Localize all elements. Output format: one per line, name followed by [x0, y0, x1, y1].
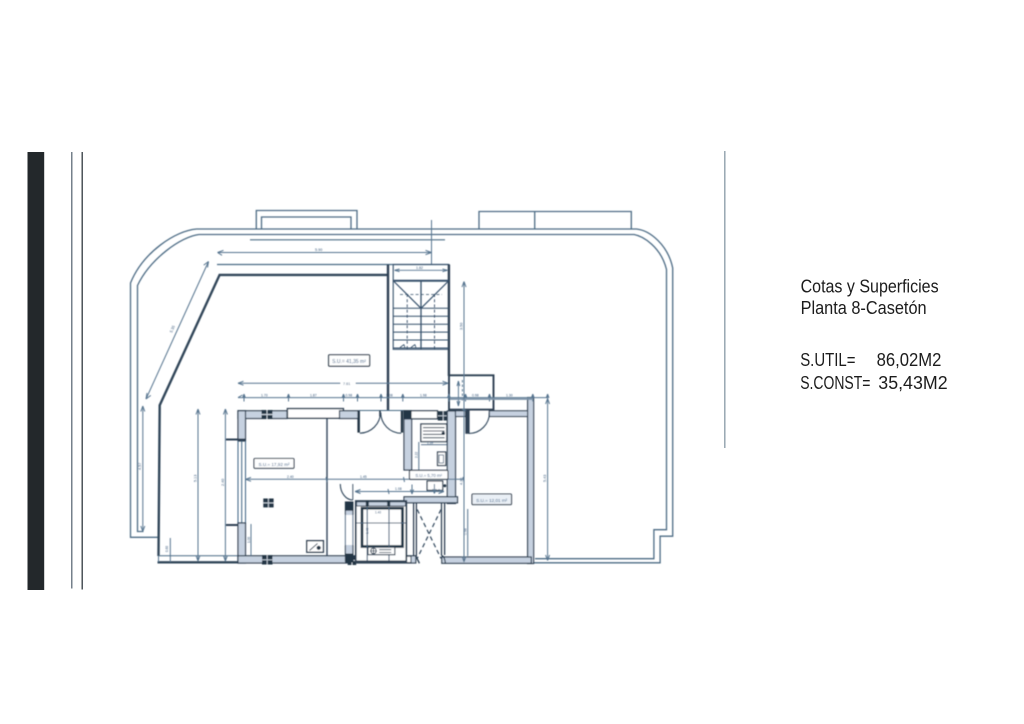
svg-text:5.90: 5.90 [315, 248, 322, 252]
svg-text:1.40: 1.40 [375, 511, 381, 515]
svg-text:1.82: 1.82 [416, 266, 423, 270]
svg-text:2.22: 2.22 [415, 452, 419, 458]
svg-text:Cotas y Superficies: Cotas y Superficies [801, 276, 939, 297]
svg-text:0.98: 0.98 [472, 393, 479, 397]
svg-text:1.40: 1.40 [366, 528, 370, 534]
svg-text:S.U.= 17,92 m²: S.U.= 17,92 m² [258, 462, 289, 467]
svg-text:2.40: 2.40 [221, 479, 225, 486]
svg-text:1.87: 1.87 [310, 393, 317, 397]
svg-text:5.13: 5.13 [194, 475, 198, 482]
svg-text:5.43: 5.43 [543, 475, 547, 482]
svg-text:0.60: 0.60 [165, 546, 169, 552]
svg-text:1.00: 1.00 [247, 537, 251, 543]
svg-text:3.50: 3.50 [460, 323, 464, 330]
svg-text:Planta 8-Casetón: Planta 8-Casetón [801, 297, 927, 318]
svg-text:1.08: 1.08 [386, 393, 393, 397]
svg-text:7.61: 7.61 [343, 382, 350, 386]
svg-text:35,43M2: 35,43M2 [878, 372, 947, 393]
svg-text:4.57: 4.57 [138, 463, 142, 470]
svg-text:1.39: 1.39 [427, 441, 433, 445]
svg-text:S.U.= 12,01 m²: S.U.= 12,01 m² [476, 498, 507, 503]
svg-text:86,02M2: 86,02M2 [877, 349, 942, 370]
svg-text:5.35: 5.35 [169, 325, 176, 333]
svg-text:2.40: 2.40 [287, 475, 294, 479]
svg-text:1.98: 1.98 [420, 393, 427, 397]
svg-text:1.08: 1.08 [395, 487, 402, 491]
svg-text:1.70: 1.70 [261, 393, 268, 397]
svg-text:S.U.= 41,35 m²: S.U.= 41,35 m² [332, 359, 366, 365]
svg-text:0.98: 0.98 [346, 393, 353, 397]
svg-text:S.U.= 5,70 m²: S.U.= 5,70 m² [415, 473, 442, 478]
svg-text:0.98: 0.98 [463, 528, 467, 535]
svg-text:4.30: 4.30 [460, 478, 464, 485]
svg-text:S.UTIL=: S.UTIL= [800, 349, 855, 370]
svg-text:1.45: 1.45 [360, 475, 367, 479]
svg-text:S.CONST=: S.CONST= [800, 372, 870, 393]
svg-text:1.30: 1.30 [506, 393, 513, 397]
